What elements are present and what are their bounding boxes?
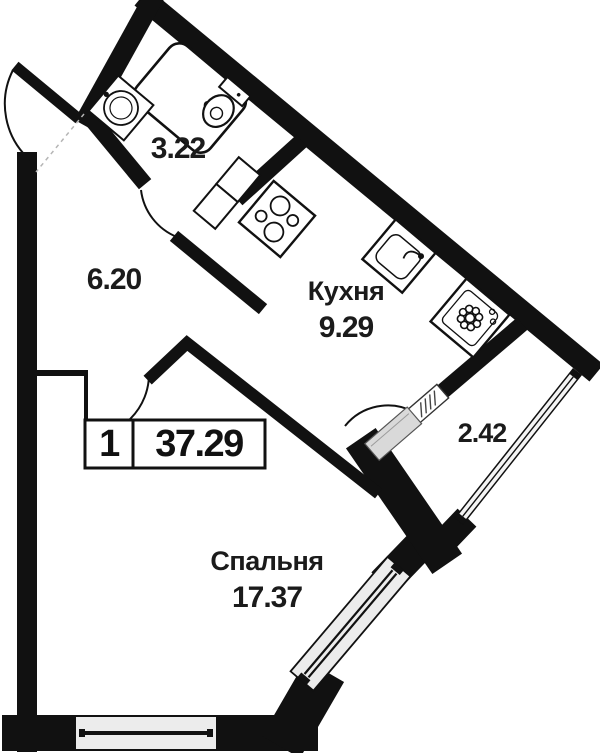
entrance-door-threshold xyxy=(36,114,84,172)
floor-plan: 1 37.29 3.22 6.20 Кухня 9.29 2.42 Спальн… xyxy=(0,0,600,753)
wall-balcony-junction-cap xyxy=(437,527,458,549)
hallway-area-label: 6.20 xyxy=(87,263,142,296)
entrance-door-leaf xyxy=(15,66,79,119)
wall-balcony-junction xyxy=(371,453,437,549)
bathroom-area-label: 3.22 xyxy=(151,132,206,165)
apartment-room-count: 1 xyxy=(99,423,120,465)
bedroom-name-label: Спальня xyxy=(210,546,323,576)
wall-hall-kitchen xyxy=(179,240,258,305)
bedroom-diagonal-window xyxy=(291,557,411,691)
apartment-total-area: 37.29 xyxy=(155,423,243,465)
balcony-area-label: 2.42 xyxy=(458,418,507,448)
fixtures xyxy=(89,38,510,357)
bathroom-door-arc xyxy=(141,190,177,237)
entrance-door-arc xyxy=(5,70,30,160)
apartment-label-box: 1 37.29 xyxy=(85,420,265,468)
kitchen-area-label: 9.29 xyxy=(319,311,374,344)
wall-corner-sw xyxy=(292,690,314,728)
bottom-window xyxy=(75,716,217,750)
bedroom-area-label: 17.37 xyxy=(232,581,302,614)
kitchen-name-label: Кухня xyxy=(308,276,384,306)
floor-plan-page: 1 37.29 3.22 6.20 Кухня 9.29 2.42 Спальн… xyxy=(0,0,600,753)
